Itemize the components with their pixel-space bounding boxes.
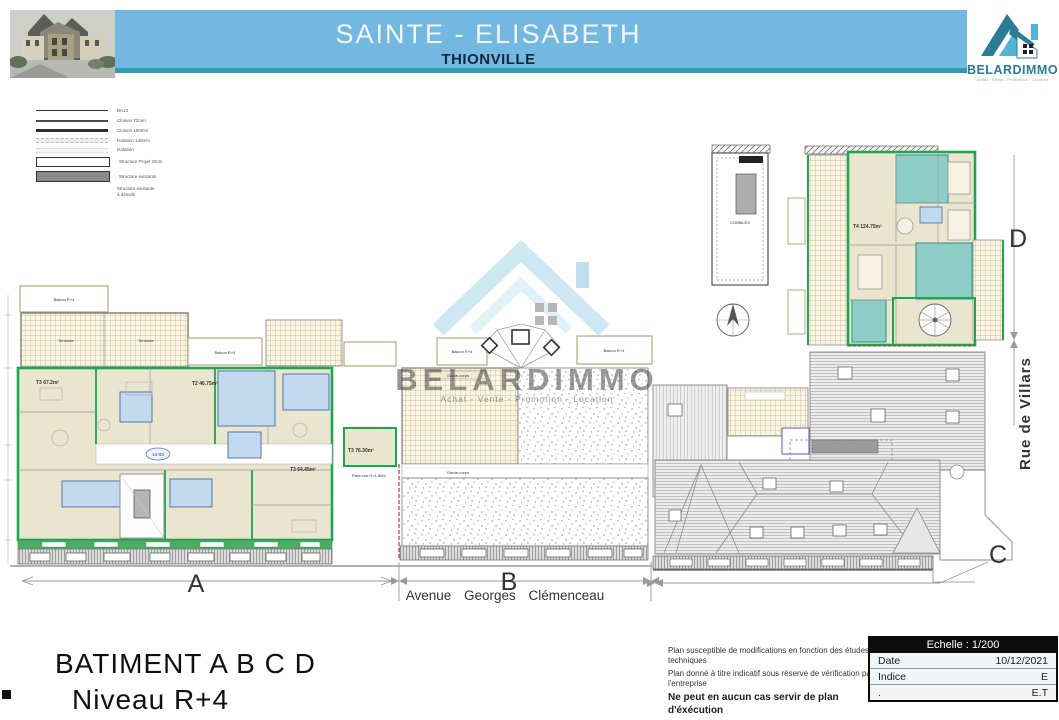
section-label-c: C [989, 541, 1007, 569]
disclaimer-notes: Plan susceptible de modifications en fon… [668, 646, 883, 720]
title-block-table: Echelle : 1/200 Date 10/12/2021 Indice E… [868, 636, 1058, 702]
row-value: 10/12/2021 [995, 655, 1048, 667]
corridor-tag: 14-03 [152, 452, 164, 457]
row-label: . [878, 687, 881, 699]
section-label-d: D [1009, 225, 1027, 253]
row-label: Date [878, 655, 900, 667]
section-c-roofs [653, 352, 1012, 582]
row-value: E [1041, 671, 1048, 683]
note-line: Ne peut en aucun cas servir de plan d'éx… [668, 692, 883, 717]
note-line: Plan donné à titre indicatif sous réserv… [668, 669, 883, 689]
apartment-label-t2: T2 46.75m² [192, 381, 218, 387]
balcon-label: Balcon R+4 [54, 297, 76, 302]
terrasse-label: Terrasse [58, 338, 74, 343]
floor-plan-drawing: Balcon R+4 Terrasse Terrasse Balcon R+4 [0, 0, 1059, 699]
level-bullet [2, 690, 11, 699]
balcon-label: Balcon R+4 [452, 349, 474, 354]
building-d: COMBLES T4 124.75m² [712, 145, 1003, 346]
watermark-tagline: Achat - Vente - Promotion - Location [440, 394, 613, 404]
combles-label: COMBLES [730, 220, 750, 225]
apartment-label-t3c: T3 64.45m² [290, 467, 316, 473]
building-title: BATIMENT A B C D [55, 648, 316, 680]
street-label-avenue: Avenue Georges Clémenceau [406, 588, 605, 603]
building-a: Balcon R+4 Terrasse Terrasse Balcon R+4 [5, 286, 398, 566]
balcon-label: Balcon R+4 [215, 350, 237, 355]
apartment-label-t3d: T3 76.30m² [348, 448, 374, 454]
level-label: Niveau R+4 [72, 684, 229, 716]
apartment-label-t3a: T3 67.2m² [36, 380, 59, 386]
spiral-stair [919, 304, 951, 336]
garde-corps-label: Garde-corps [447, 470, 469, 475]
row-label: Indice [878, 671, 906, 683]
terrasse-label: Terrasse [138, 338, 154, 343]
table-row: Indice E [870, 669, 1056, 685]
section-label-a: A [188, 570, 205, 598]
compass-icon [717, 304, 749, 336]
apartment-label-t4: T4 124.75m² [853, 224, 882, 230]
table-row: Date 10/12/2021 [870, 653, 1056, 669]
watermark-name: BELARDIMMO [395, 362, 659, 397]
street-label-rue: Rue de Villars [1017, 357, 1034, 470]
table-row: . E.T [870, 685, 1056, 700]
row-value: E.T [1032, 687, 1048, 699]
section-b: Balcon R+4 Balcon R+4 Garde-corps Garde-… [398, 324, 652, 566]
balcon-label: Balcon R+4 [604, 348, 626, 353]
note-line: Plan susceptible de modifications en fon… [668, 646, 883, 666]
scale-header: Echelle : 1/200 [870, 638, 1056, 653]
pare-vue-label: Pare-vue H=1.80m [352, 473, 386, 478]
